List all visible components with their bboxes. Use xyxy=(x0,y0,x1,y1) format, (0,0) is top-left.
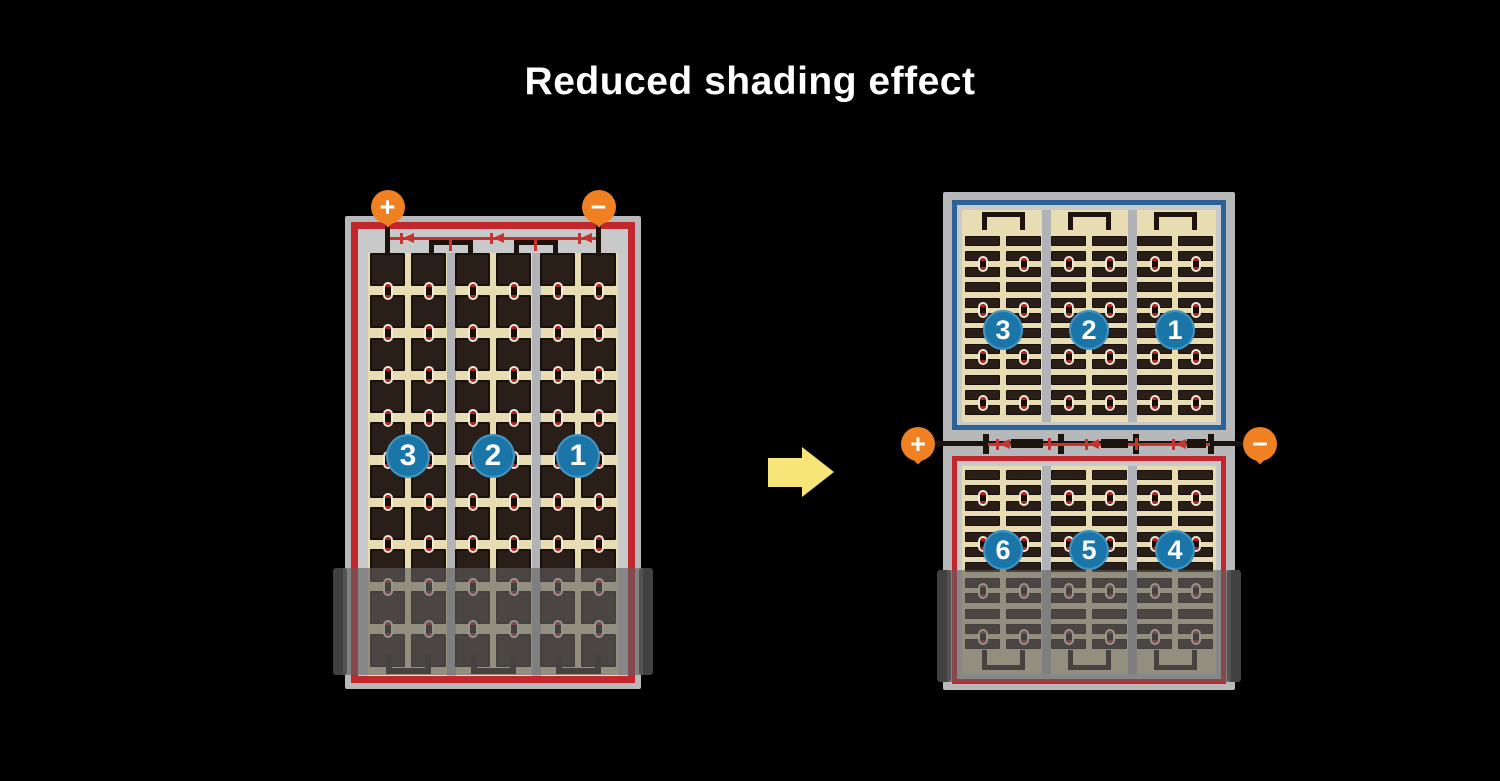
cell-connector-dot xyxy=(596,537,602,551)
cell-connector-dot xyxy=(1152,397,1158,409)
cell-connector-dot xyxy=(1152,492,1158,504)
solar-cell xyxy=(540,338,575,371)
solar-cell xyxy=(1006,282,1041,292)
diode-line-tick xyxy=(1135,438,1138,450)
bus-bar-top xyxy=(1068,212,1111,230)
cell-connector-dot xyxy=(470,411,476,425)
page-title: Reduced shading effect xyxy=(0,60,1500,104)
shade-overlay-left xyxy=(333,568,653,675)
solar-cell xyxy=(581,380,616,413)
solar-cell xyxy=(455,338,490,371)
cell-connector-dot xyxy=(555,537,561,551)
solar-cell xyxy=(496,380,531,413)
solar-cell xyxy=(1006,516,1041,526)
cell-connector-dot xyxy=(980,351,986,363)
solar-cell xyxy=(455,380,490,413)
cell-connector-dot xyxy=(596,368,602,382)
solar-cell xyxy=(965,236,1000,246)
cell-connector-dot xyxy=(980,492,986,504)
cell-connector-dot xyxy=(1021,304,1027,316)
solar-cell xyxy=(370,338,405,371)
solar-cell xyxy=(965,282,1000,292)
diode-icon xyxy=(581,233,592,243)
string-number-badge: 2 xyxy=(471,434,515,478)
string-number-badge: 6 xyxy=(983,530,1023,570)
diode-line-tick xyxy=(1048,438,1051,450)
bus-bar-top xyxy=(982,212,1025,230)
cell-connector-dot xyxy=(980,258,986,270)
arrow-shaft xyxy=(768,458,802,487)
cell-connector-dot xyxy=(1152,351,1158,363)
cell-connector-dot xyxy=(1193,397,1199,409)
cell-connector-dot xyxy=(1021,397,1027,409)
cell-connector-dot xyxy=(426,368,432,382)
bus-wire-segment xyxy=(1187,439,1206,448)
solar-cell xyxy=(1051,236,1086,246)
cell-connector-dot xyxy=(1066,397,1072,409)
arrow-head xyxy=(802,447,834,497)
cell-connector-dot xyxy=(596,495,602,509)
cell-connector-dot xyxy=(1021,492,1027,504)
diode-line-tick xyxy=(534,238,537,251)
cell-connector-dot xyxy=(426,537,432,551)
string-separator xyxy=(1042,210,1051,422)
cell-connector-dot xyxy=(1066,304,1072,316)
solar-cell xyxy=(370,253,405,286)
diode-icon xyxy=(403,233,414,243)
solar-cell xyxy=(411,380,446,413)
cell-connector-dot xyxy=(555,326,561,340)
cell-connector-dot xyxy=(511,495,517,509)
solar-cell xyxy=(965,375,1000,385)
solar-cell xyxy=(1092,375,1127,385)
solar-cell xyxy=(1178,282,1213,292)
cell-connector-dot xyxy=(980,397,986,409)
cell-connector-dot xyxy=(1193,304,1199,316)
cell-connector-dot xyxy=(980,304,986,316)
string-number-badge: 3 xyxy=(386,434,430,478)
cell-connector-dot xyxy=(511,411,517,425)
cell-connector-dot xyxy=(1021,351,1027,363)
cell-connector-dot xyxy=(1021,258,1027,270)
cell-connector-dot xyxy=(426,326,432,340)
solar-cell xyxy=(1178,236,1213,246)
cell-connector-dot xyxy=(511,326,517,340)
solar-cell xyxy=(581,295,616,328)
shade-fill xyxy=(343,568,643,675)
solar-cell xyxy=(1137,282,1172,292)
solar-cell xyxy=(581,338,616,371)
bus-bar-top xyxy=(1154,212,1197,230)
diode-line-tick xyxy=(449,238,452,251)
solar-cell xyxy=(1006,470,1041,480)
cell-connector-dot xyxy=(385,411,391,425)
string-separator xyxy=(1128,210,1137,422)
cell-connector-dot xyxy=(385,326,391,340)
cell-connector-dot xyxy=(1066,351,1072,363)
cell-connector-dot xyxy=(555,411,561,425)
string-number-badge: 3 xyxy=(983,310,1023,350)
shade-fill xyxy=(947,570,1231,682)
string-number-badge: 1 xyxy=(1155,310,1195,350)
solar-cell xyxy=(370,380,405,413)
cell-connector-dot xyxy=(385,537,391,551)
cell-connector-dot xyxy=(596,284,602,298)
cell-connector-dot xyxy=(596,326,602,340)
solar-cell xyxy=(455,253,490,286)
cell-connector-dot xyxy=(1193,351,1199,363)
solar-cell xyxy=(1051,282,1086,292)
cell-connector-dot xyxy=(511,537,517,551)
shading-effect-infographic: Reduced shading effect +−321 321654+− xyxy=(0,0,1500,781)
solar-cell xyxy=(1137,236,1172,246)
string-number-badge: 5 xyxy=(1069,530,1109,570)
cell-connector-dot xyxy=(385,368,391,382)
solar-cell xyxy=(1137,516,1172,526)
solar-cell xyxy=(411,295,446,328)
cell-connector-dot xyxy=(555,495,561,509)
cell-connector-dot xyxy=(426,284,432,298)
cell-connector-dot xyxy=(470,326,476,340)
solar-cell xyxy=(370,295,405,328)
cell-connector-dot xyxy=(596,411,602,425)
solar-cell xyxy=(1178,516,1213,526)
cell-connector-dot xyxy=(555,368,561,382)
solar-cell xyxy=(496,253,531,286)
terminal-plus: + xyxy=(901,427,935,461)
cell-connector-dot xyxy=(1152,258,1158,270)
cell-connector-dot xyxy=(470,495,476,509)
cell-connector-dot xyxy=(385,284,391,298)
solar-cell xyxy=(1006,236,1041,246)
solar-cell xyxy=(411,507,446,540)
solar-cell xyxy=(1092,236,1127,246)
cell-connector-dot xyxy=(1066,492,1072,504)
solar-cell xyxy=(411,338,446,371)
cell-connector-dot xyxy=(1107,258,1113,270)
string-number-badge: 1 xyxy=(556,434,600,478)
solar-cell xyxy=(1137,375,1172,385)
transform-arrow-icon xyxy=(768,447,834,498)
solar-cell xyxy=(496,507,531,540)
solar-cell xyxy=(496,338,531,371)
cell-connector-dot xyxy=(1107,397,1113,409)
cell-connector-dot xyxy=(1193,258,1199,270)
solar-cell xyxy=(540,295,575,328)
shade-overlay-right xyxy=(937,570,1241,682)
cell-connector-dot xyxy=(385,495,391,509)
solar-cell xyxy=(540,253,575,286)
solar-cell xyxy=(455,295,490,328)
string-number-badge: 4 xyxy=(1155,530,1195,570)
cell-connector-dot xyxy=(1107,351,1113,363)
solar-cell xyxy=(370,507,405,540)
solar-cell xyxy=(581,507,616,540)
cell-connector-dot xyxy=(511,368,517,382)
solar-cell xyxy=(1092,516,1127,526)
terminal-plus: + xyxy=(371,190,405,224)
diode-icon xyxy=(999,439,1010,449)
solar-cell xyxy=(1051,470,1086,480)
bus-wire-segment xyxy=(1101,439,1128,448)
cell-connector-dot xyxy=(555,284,561,298)
cell-connector-dot xyxy=(470,368,476,382)
solar-cell xyxy=(411,253,446,286)
cell-connector-dot xyxy=(470,284,476,298)
solar-cell xyxy=(1178,375,1213,385)
string-number-badge: 2 xyxy=(1069,310,1109,350)
solar-cell xyxy=(1051,375,1086,385)
solar-cell xyxy=(1092,282,1127,292)
diode-icon xyxy=(1088,439,1099,449)
cell-connector-dot xyxy=(1107,304,1113,316)
cell-connector-dot xyxy=(426,495,432,509)
solar-cell xyxy=(1178,470,1213,480)
cell-connector-dot xyxy=(1066,258,1072,270)
solar-cell xyxy=(496,295,531,328)
bus-wire-segment xyxy=(1011,439,1043,448)
diode-icon xyxy=(493,233,504,243)
cell-connector-dot xyxy=(1152,304,1158,316)
cell-connector-dot xyxy=(1193,492,1199,504)
solar-cell xyxy=(1006,375,1041,385)
terminal-minus: − xyxy=(1243,427,1277,461)
solar-cell xyxy=(1092,470,1127,480)
diode-icon xyxy=(1175,439,1186,449)
cell-connector-dot xyxy=(426,411,432,425)
solar-cell xyxy=(965,516,1000,526)
solar-cell xyxy=(540,507,575,540)
solar-cell xyxy=(581,253,616,286)
terminal-minus: − xyxy=(582,190,616,224)
solar-cell xyxy=(455,507,490,540)
solar-cell xyxy=(1051,516,1086,526)
cell-connector-dot xyxy=(511,284,517,298)
cell-connector-dot xyxy=(1107,492,1113,504)
solar-cell xyxy=(965,470,1000,480)
solar-cell xyxy=(540,380,575,413)
solar-cell xyxy=(1137,470,1172,480)
cell-connector-dot xyxy=(470,537,476,551)
